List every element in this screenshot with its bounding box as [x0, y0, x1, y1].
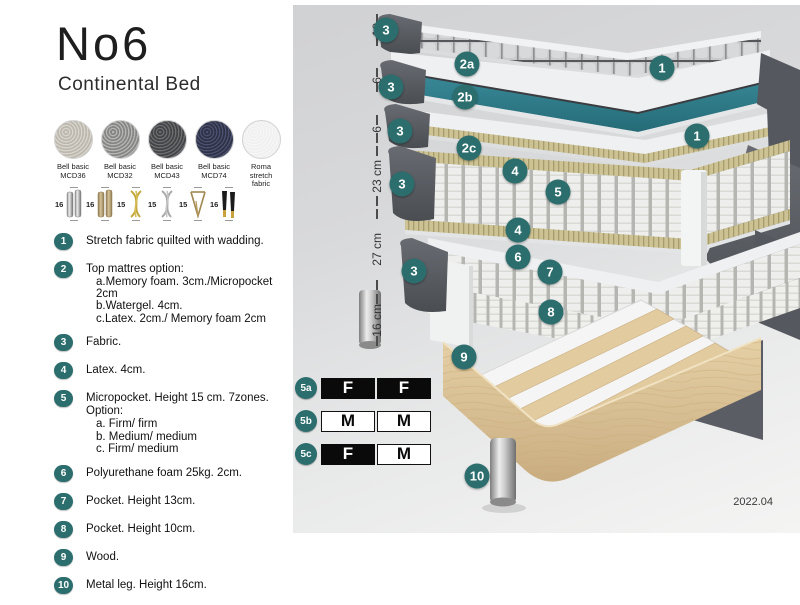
dimension-tick	[376, 68, 378, 77]
dimension-tick	[376, 133, 378, 143]
fabric-swatch-circle[interactable]	[101, 120, 140, 159]
legend-item-5: 5 Micropocket. Height 15 cm. 7zones. Opt…	[54, 390, 292, 456]
firmness-row-5a: 5a F F	[295, 377, 433, 399]
callout-badge-3: 3	[402, 259, 427, 284]
legend-number-badge: 8	[54, 521, 73, 538]
callout-badge-1: 1	[650, 56, 675, 81]
firmness-cell: F	[377, 378, 431, 399]
twisted-silver-leg-icon	[157, 186, 177, 222]
legend-number-badge: 6	[54, 465, 73, 482]
firmness-row-5c: 5c F M	[295, 443, 433, 465]
legend-number-badge: 10	[54, 577, 73, 594]
callout-badge-2a: 2a	[455, 52, 480, 77]
legend-subitem: c. Firm/ medium	[96, 444, 292, 456]
leg-options: 16 16 15 15 15 16	[55, 186, 237, 222]
fabric-swatch-circle[interactable]	[148, 120, 187, 159]
legend-text: Top mattres option: a.Memory foam. 3cm./…	[86, 261, 292, 325]
leg-height-label: 15	[179, 200, 187, 209]
dimension-tick	[376, 146, 378, 156]
legend-text: Pocket. Height 10cm.	[86, 521, 195, 538]
callout-badge-5: 5	[546, 180, 571, 205]
diagram-panel: 10 6 6 23 cm 27 cm 16 cm 3 2a 1 3 2b 1 3…	[293, 0, 800, 533]
leg-option[interactable]: 15	[117, 186, 144, 222]
leg-height-label: 16	[55, 200, 63, 209]
dimension-tick	[376, 83, 378, 92]
legend-item-2: 2 Top mattres option: a.Memory foam. 3cm…	[54, 261, 292, 325]
dimension-tick	[376, 280, 378, 290]
legend-number-badge: 1	[54, 233, 73, 250]
tapered-black-gold-leg-icon	[219, 186, 239, 222]
callout-badge-6: 6	[506, 245, 531, 270]
leg-option[interactable]: 16	[210, 186, 237, 222]
leg-option[interactable]: 16	[86, 186, 113, 222]
callout-badge-10: 10	[465, 464, 490, 489]
twisted-gold-leg-icon	[126, 186, 146, 222]
dimension-16cm: 16 cm	[365, 294, 389, 346]
legend-text: Fabric.	[86, 334, 121, 351]
legend-item-1: 1 Stretch fabric quilted with wadding.	[54, 233, 292, 250]
legend-subitem: a.Memory foam. 3cm./Micropocket 2cm	[96, 277, 292, 300]
hairpin-leg-icon	[188, 186, 208, 222]
dimension-tick	[376, 209, 378, 219]
leg-height-label: 15	[117, 200, 125, 209]
legend-text: Metal leg. Height 16cm.	[86, 577, 207, 594]
legend-text: Pocket. Height 13cm.	[86, 493, 195, 510]
firmness-cell: F	[321, 444, 375, 465]
fabric-swatch-circle[interactable]	[242, 120, 281, 159]
leg-height-label: 16	[86, 200, 94, 209]
legend-subitem: b.Watergel. 4cm.	[96, 301, 292, 313]
fabric-swatch: Bell basicMCD43	[146, 120, 188, 189]
leg-height-label: 15	[148, 200, 156, 209]
callout-badge-2b: 2b	[453, 85, 478, 110]
leg-option[interactable]: 15	[148, 186, 175, 222]
callout-badge-3: 3	[374, 18, 399, 43]
cylinder-brass-leg-icon	[95, 186, 115, 222]
callout-badge-9: 9	[452, 345, 477, 370]
leg-option[interactable]: 16	[55, 186, 82, 222]
legend-item-6: 6 Polyurethane foam 25kg. 2cm.	[54, 465, 292, 482]
fabric-swatch-label: Romastretch fabric	[240, 163, 282, 189]
dimension-tick	[376, 294, 378, 304]
legend-number-badge: 7	[54, 493, 73, 510]
legend-number-badge: 2	[54, 261, 73, 278]
legend-text: Polyurethane foam 25kg. 2cm.	[86, 465, 242, 482]
legend-item-9: 9 Wood.	[54, 549, 292, 566]
legend-number-badge: 3	[54, 334, 73, 351]
dimension-tick	[376, 196, 378, 206]
callout-badge-8: 8	[539, 300, 564, 325]
legend-number-badge: 9	[54, 549, 73, 566]
version-date: 2022.04	[733, 496, 773, 508]
firmness-row-key: 5a	[295, 377, 317, 399]
legend-text: Stretch fabric quilted with wadding.	[86, 233, 264, 250]
callout-badge-4: 4	[506, 218, 531, 243]
page-subtitle: Continental Bed	[58, 74, 201, 96]
callout-badge-1: 1	[685, 124, 710, 149]
fabric-swatch-label: Bell basicMCD74	[198, 163, 230, 180]
dimension-23cm: 23 cm	[365, 146, 389, 206]
firmness-cell: M	[321, 411, 375, 432]
legend-item-3: 3 Fabric.	[54, 334, 292, 351]
legend-subitem: a. Firm/ firm	[96, 419, 292, 431]
dimension-tick	[376, 115, 378, 125]
page-title: No6	[56, 16, 151, 71]
callout-badge-7: 7	[538, 260, 563, 285]
firmness-row-5b: 5b M M	[295, 410, 433, 432]
legend-list: 1 Stretch fabric quilted with wadding. 2…	[54, 233, 292, 605]
firmness-cell: F	[321, 378, 375, 399]
top-white-strip	[293, 0, 800, 5]
legend-number-badge: 5	[54, 390, 73, 407]
fabric-swatch: Bell basicMCD36	[52, 120, 94, 189]
fabric-swatch-label: Bell basicMCD32	[104, 163, 136, 180]
firmness-cell: M	[377, 444, 431, 465]
firmness-row-key: 5b	[295, 410, 317, 432]
fabric-swatch-label: Bell basicMCD36	[57, 163, 89, 180]
cylinder-silver-leg-icon	[64, 186, 84, 222]
callout-badge-4: 4	[503, 159, 528, 184]
callout-badge-3: 3	[379, 75, 404, 100]
fabric-swatch-circle[interactable]	[54, 120, 93, 159]
firmness-cell: M	[377, 411, 431, 432]
dimension-tick	[376, 336, 378, 346]
legend-item-4: 4 Latex. 4cm.	[54, 362, 292, 379]
legend-item-8: 8 Pocket. Height 10cm.	[54, 521, 292, 538]
legend-item-7: 7 Pocket. Height 13cm.	[54, 493, 292, 510]
leg-option[interactable]: 15	[179, 186, 206, 222]
legend-item-10: 10 Metal leg. Height 16cm.	[54, 577, 292, 594]
fabric-swatch-label: Bell basicMCD43	[151, 163, 183, 180]
callout-badge-3: 3	[388, 119, 413, 144]
legend-text: Latex. 4cm.	[86, 362, 145, 379]
dimension-6b: 6	[365, 115, 389, 143]
callout-badge-3: 3	[390, 172, 415, 197]
legend-subitem: b. Medium/ medium	[96, 432, 292, 444]
fabric-swatch: Romastretch fabric	[240, 120, 282, 189]
leg-height-label: 16	[210, 200, 218, 209]
fabric-swatch-circle[interactable]	[195, 120, 234, 159]
fabric-swatch: Bell basicMCD32	[99, 120, 141, 189]
legend-text: Wood.	[86, 549, 119, 566]
callout-badge-2c: 2c	[457, 136, 482, 161]
legend-subitem: c.Latex. 2cm./ Memory foam 2cm	[96, 314, 292, 326]
dimension-27cm: 27 cm	[365, 209, 389, 290]
firmness-row-key: 5c	[295, 443, 317, 465]
legend-number-badge: 4	[54, 362, 73, 379]
fabric-swatches: Bell basicMCD36 Bell basicMCD32 Bell bas…	[52, 120, 282, 189]
legend-text: Micropocket. Height 15 cm. 7zones. Optio…	[86, 390, 292, 456]
fabric-swatch: Bell basicMCD74	[193, 120, 235, 189]
